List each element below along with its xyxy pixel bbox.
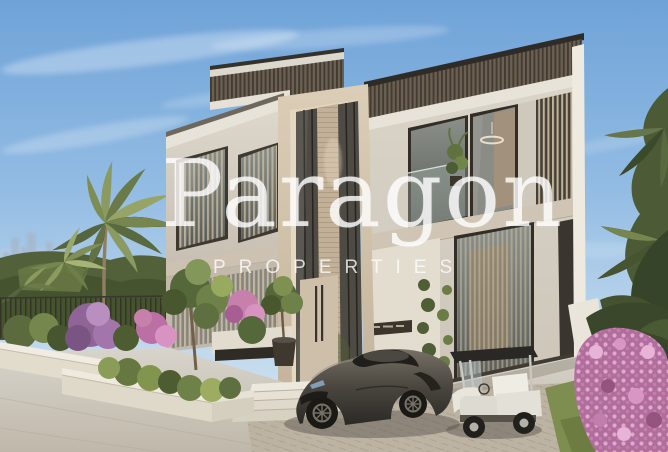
upper-interior-window bbox=[470, 104, 518, 219]
bougainvillea bbox=[574, 302, 668, 452]
upper-window bbox=[176, 146, 228, 251]
car-wheel bbox=[399, 390, 427, 418]
car-wheel bbox=[306, 397, 338, 429]
cart-wheel bbox=[513, 412, 535, 434]
cart-wheel bbox=[463, 416, 485, 438]
villa-render bbox=[0, 0, 668, 452]
upper-window bbox=[238, 142, 280, 243]
balcony bbox=[408, 115, 468, 231]
upper-louvre-window bbox=[536, 92, 572, 213]
listing-photo: Paragon PROPERTIES bbox=[0, 0, 668, 452]
